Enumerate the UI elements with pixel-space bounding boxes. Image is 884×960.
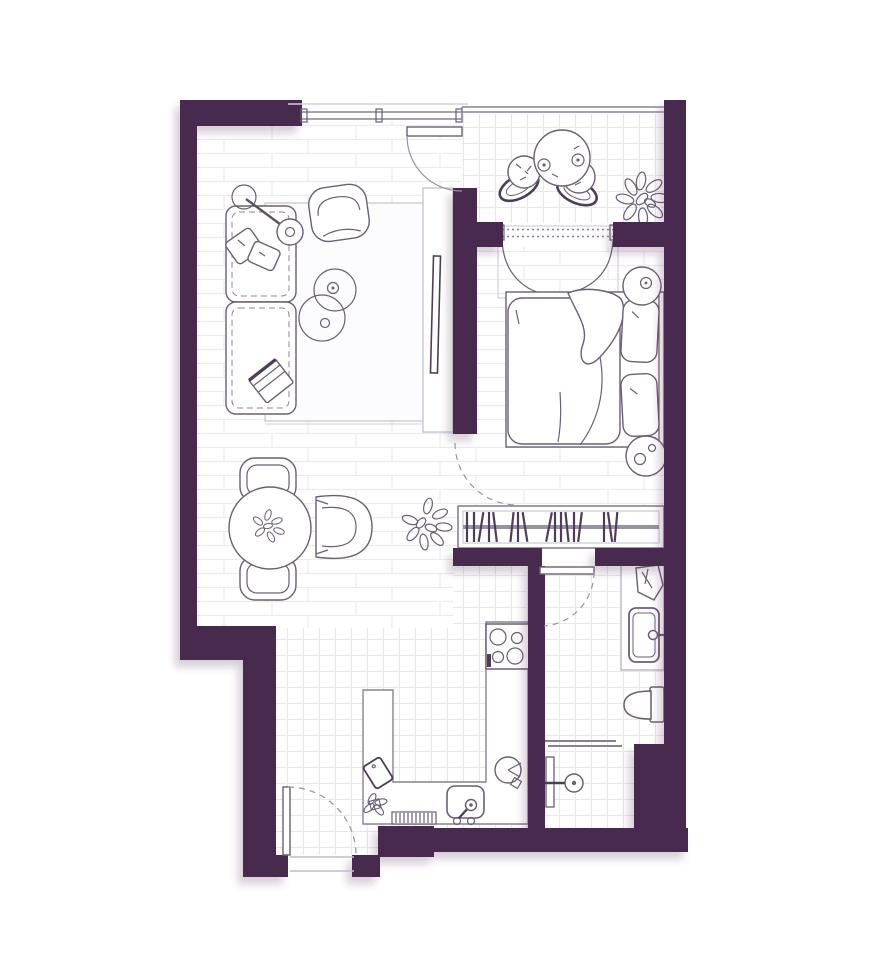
bedside-table-bottom	[626, 436, 666, 476]
double-bed	[506, 289, 664, 447]
tv-unit	[423, 188, 453, 432]
wall-bottom-right	[430, 828, 688, 852]
living-room-window	[288, 104, 468, 122]
entry-threshold	[290, 857, 354, 871]
wall-bedroom-bottom-left	[453, 548, 542, 566]
wall-partition-tv	[453, 188, 477, 434]
stove	[486, 624, 530, 669]
floor-plan-drawing	[0, 0, 884, 960]
bedside-table-top	[623, 267, 661, 305]
bookshelf	[458, 506, 664, 548]
pillow-bottom	[620, 373, 659, 437]
entry-door-leaf	[283, 787, 290, 855]
kitchen-floor-top	[453, 566, 528, 628]
balcony-door-leaf	[407, 127, 462, 136]
wall-kitchen-bath-divider	[528, 566, 545, 830]
wall-bedroom-corner	[477, 222, 503, 247]
bistro-table	[534, 130, 590, 186]
wall-top-left	[180, 100, 302, 126]
floor-plan-page	[0, 0, 884, 960]
wall-bathroom-notch	[634, 744, 666, 830]
wall-bottom-door-jamb	[352, 855, 380, 877]
dining-armchair	[316, 496, 372, 559]
bathroom-door-leaf	[540, 567, 594, 574]
lamp-shade	[277, 219, 303, 245]
pillow-top	[620, 299, 659, 363]
wall-bottom-left	[243, 855, 288, 877]
wall-right	[664, 100, 686, 852]
wall-bedroom-bottom-right	[595, 548, 666, 566]
wall-left-lower	[243, 626, 276, 877]
sofa-module-bottom	[226, 302, 296, 414]
wall-balcony-bedroom	[613, 222, 666, 247]
wall-left	[180, 100, 197, 628]
armchair	[307, 182, 372, 244]
door-mat	[392, 812, 436, 824]
wall-bottom-step	[378, 826, 434, 857]
